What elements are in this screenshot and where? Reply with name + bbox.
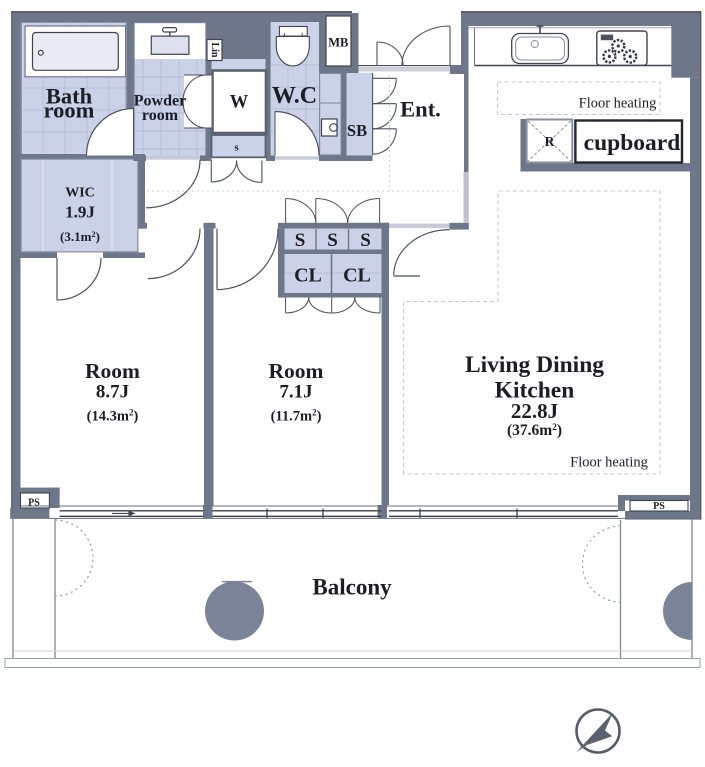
svg-text:Balcony: Balcony: [312, 575, 392, 600]
svg-text:PS: PS: [653, 501, 665, 512]
svg-text:Floor heating: Floor heating: [579, 96, 657, 112]
svg-text:WIC1.9J(3.1m2): WIC1.9J(3.1m2): [60, 186, 100, 245]
svg-text:Bathroom: Bathroom: [44, 84, 95, 123]
svg-text:S: S: [295, 230, 306, 251]
svg-text:S: S: [360, 230, 371, 251]
svg-text:CL: CL: [294, 265, 322, 287]
svg-text:MB: MB: [328, 36, 348, 50]
svg-text:W: W: [230, 93, 249, 113]
svg-text:SB: SB: [347, 121, 367, 140]
svg-text:R: R: [545, 134, 555, 149]
svg-text:cupboard: cupboard: [584, 130, 681, 156]
svg-text:Lin: Lin: [209, 42, 220, 57]
svg-text:Ent.: Ent.: [400, 97, 441, 122]
svg-text:S: S: [327, 230, 338, 251]
svg-text:PS: PS: [28, 498, 40, 509]
svg-text:W.C: W.C: [272, 83, 317, 109]
svg-text:Floor heating: Floor heating: [570, 455, 648, 471]
svg-text:s: s: [234, 142, 239, 154]
svg-text:CL: CL: [343, 265, 371, 287]
